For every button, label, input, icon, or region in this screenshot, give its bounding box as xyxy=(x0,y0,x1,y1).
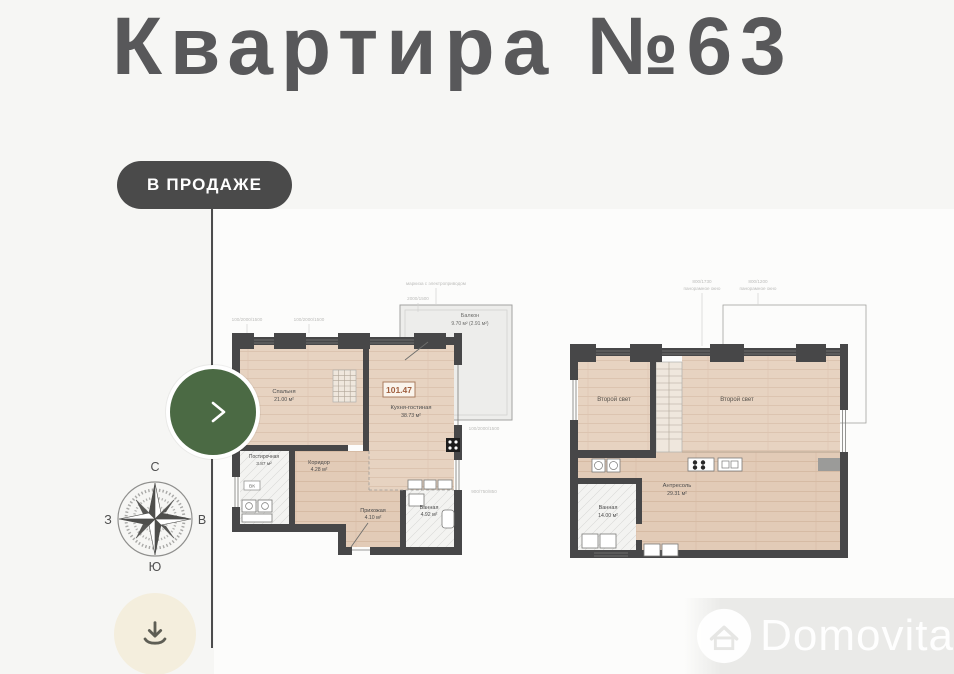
room-label-balcony: Балкон xyxy=(461,313,479,319)
total-area-value: 101.47 xyxy=(386,385,412,395)
annotation2-dim-1: 800/1730 xyxy=(692,279,712,284)
room-area-balcony: 9.70 м² (2.91 м²) xyxy=(451,321,489,327)
floor-plan-level-1: Спальня 21.00 м² 101.47 Кухня-гостиная 3… xyxy=(218,262,518,572)
compass-west-label: З xyxy=(104,513,112,527)
room-label-bath: Ванная xyxy=(420,505,439,511)
annotation-dim-3: 100/2000/1500 xyxy=(294,317,325,322)
room-area-bath2: 14.00 м² xyxy=(598,513,618,519)
room-label-void-left: Второй свет xyxy=(597,396,631,403)
carousel-next-button[interactable] xyxy=(166,365,260,459)
watermark: Domovita xyxy=(684,598,954,674)
stairs-2 xyxy=(656,362,682,452)
annotation-dim-5: 900/750/850 xyxy=(471,489,497,494)
room-label-hall: Прихожая xyxy=(360,508,386,514)
status-badge: В ПРОДАЖЕ xyxy=(117,161,292,209)
annotation2-dim-2: 800/1200 xyxy=(748,279,768,284)
floor-plan-level-2: Второй свет Второй свет Антресоль 29.31 … xyxy=(558,262,870,572)
room-label-mezzanine: Антресоль xyxy=(663,483,692,489)
room-label-void-right: Второй свет xyxy=(720,396,754,403)
annotation2-label-2: панорамное окно xyxy=(740,286,777,291)
room-area-bedroom: 21.00 м² xyxy=(274,397,294,403)
stairs xyxy=(333,370,356,402)
room-label-bedroom: Спальня xyxy=(272,389,295,395)
watermark-brand-text: Domovita xyxy=(760,611,954,661)
room-area-bath: 4.92 м² xyxy=(421,512,438,518)
annotation2-leaders xyxy=(702,293,758,346)
download-plan-button[interactable] xyxy=(114,593,196,674)
annotation-awning: маркиза с электроприводом xyxy=(406,281,466,286)
room-area-hall: 4.10 м² xyxy=(365,515,382,521)
void-left-floor xyxy=(578,356,650,450)
chevron-right-icon xyxy=(203,397,233,427)
room-label-bath2: Ванная xyxy=(599,505,618,511)
vk-label: ВК xyxy=(249,484,255,490)
annotation2-label-1: панорамное окно xyxy=(684,286,721,291)
compass-north-label: С xyxy=(150,460,159,474)
void-right-floor xyxy=(682,356,840,452)
annotation-dim-2: 100/2000/1500 xyxy=(232,317,263,322)
watermark-logo-icon xyxy=(696,607,752,665)
page-title: Квартира №63 xyxy=(112,0,794,94)
compass-rose: С Ю З В xyxy=(103,458,207,574)
room-label-laundry: Постирочная xyxy=(249,454,280,460)
room-area-kitchen: 38.73 м² xyxy=(401,413,421,419)
room-label-corridor: Коридор xyxy=(308,460,330,466)
room-area-corridor: 4.28 м² xyxy=(311,467,328,473)
compass-south-label: Ю xyxy=(149,560,162,574)
room-area-mezzanine: 29.31 м² xyxy=(667,491,687,497)
annotation-dim-4: 100/2000/1500 xyxy=(469,426,500,431)
download-icon xyxy=(138,617,172,651)
annotation-dim-1: 2000/1500 xyxy=(407,296,429,301)
compass-east-label: В xyxy=(198,513,206,527)
room-area-laundry: 3.87 м² xyxy=(256,461,272,467)
room-label-kitchen: Кухня-гостиная xyxy=(390,405,431,411)
compass-rose-drawing xyxy=(118,482,192,556)
